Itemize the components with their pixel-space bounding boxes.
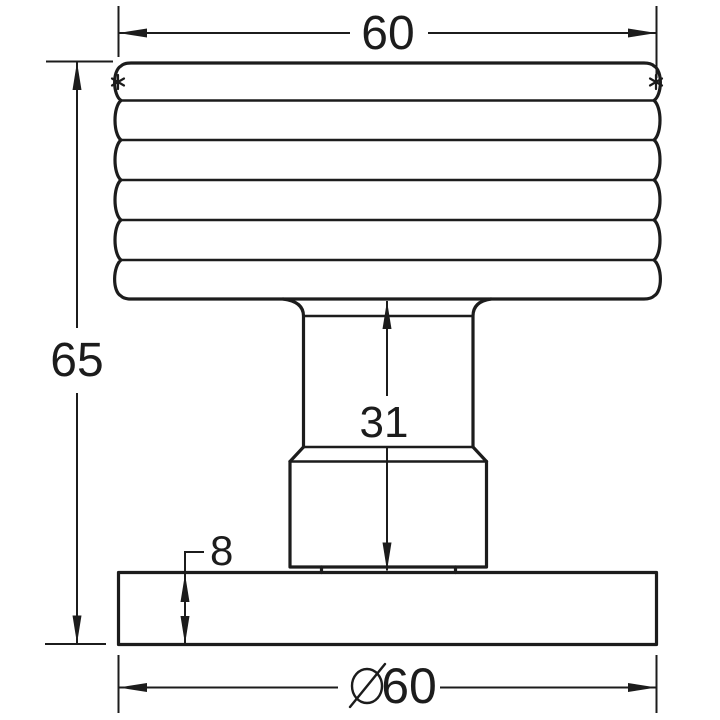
dim-overall-height: 65 (45, 62, 113, 645)
knob-dimension-drawing: 60 65 31 8 (0, 0, 720, 720)
taper-left-edge (290, 447, 304, 462)
technical-drawing-canvas: 60 65 31 8 (0, 0, 720, 720)
dim-base-diameter-label: 60 (381, 658, 437, 714)
arrowhead-right (628, 29, 657, 38)
base-outline (119, 573, 657, 645)
dim-knob-width: 60 (119, 6, 657, 78)
stem-left-edge (283, 299, 304, 447)
dim-base-thickness-label: 8 (210, 527, 233, 574)
arrowhead-right (628, 683, 657, 692)
diameter-symbol-icon (350, 664, 385, 707)
dim-overall-height-label: 65 (50, 334, 103, 387)
arrowhead-left (119, 29, 148, 38)
dim-knob-width-label: 60 (361, 7, 414, 60)
arrowhead-up (73, 62, 82, 90)
dim-base-thickness: 8 (181, 527, 234, 644)
dim-base-diameter: 60 (119, 655, 657, 714)
taper-right-edge (473, 447, 487, 462)
arrowhead-up (181, 574, 190, 602)
arrowhead-down (181, 616, 190, 644)
arrowhead-left (119, 683, 148, 692)
dim-stem-height-label: 31 (360, 398, 409, 447)
arrowhead-down (73, 616, 82, 644)
stem-right-edge (473, 299, 491, 447)
dim-stem-height: 31 (360, 301, 409, 571)
